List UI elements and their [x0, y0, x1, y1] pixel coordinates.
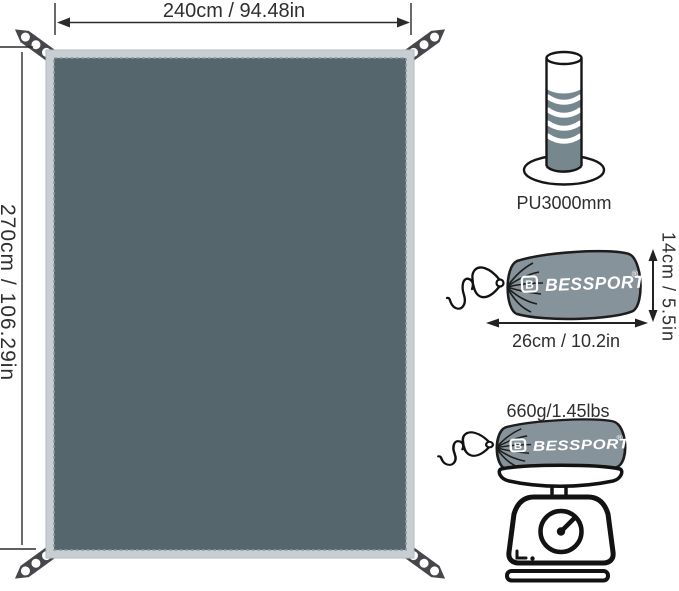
scale-platform: [499, 465, 622, 486]
arrowhead-down: [649, 310, 658, 322]
packed-width-label: 26cm / 10.2in: [491, 331, 641, 352]
arrowhead-right: [635, 319, 648, 328]
weighing-scale-icon: [499, 465, 622, 580]
tube-mouth: [547, 52, 582, 64]
tarp-footprint: [46, 50, 414, 558]
arrowhead-right: [397, 18, 410, 28]
drawstring-cord: [462, 432, 488, 449]
arrowhead-left: [57, 18, 70, 28]
product-infographic: B BESSPORT ®: [0, 0, 679, 591]
stuff-sack-icon: B BESSPORT ®: [447, 251, 646, 319]
infographic-canvas: B BESSPORT ®: [0, 0, 679, 591]
arrowhead-up: [649, 249, 658, 261]
drawstring-knot: [497, 280, 504, 287]
registered-mark: ®: [632, 269, 639, 279]
weight-label: 660g/1.45lbs: [482, 401, 634, 422]
tarp-height-label: 270cm / 106.29in: [0, 204, 19, 381]
drawstring-cord: [472, 268, 499, 289]
registered-mark: ®: [616, 433, 623, 441]
brand-logo-letter: B: [525, 277, 534, 291]
waterproof-rating-label: PU3000mm: [489, 193, 639, 214]
dial-hub: [557, 527, 565, 535]
drawstring-knot: [486, 442, 493, 448]
water-column-icon: [524, 52, 604, 185]
scale-base: [507, 571, 608, 581]
brand-logo-letter: B: [514, 441, 523, 452]
packed-height-label: 14cm / 5.5in: [658, 232, 679, 342]
tarp-fabric: [54, 58, 406, 550]
tarp-width-label: 240cm / 94.48in: [158, 0, 310, 23]
packed-height-arrow: [649, 249, 658, 322]
scale-mark-dot: [530, 556, 534, 560]
arrowhead-left: [486, 319, 499, 328]
